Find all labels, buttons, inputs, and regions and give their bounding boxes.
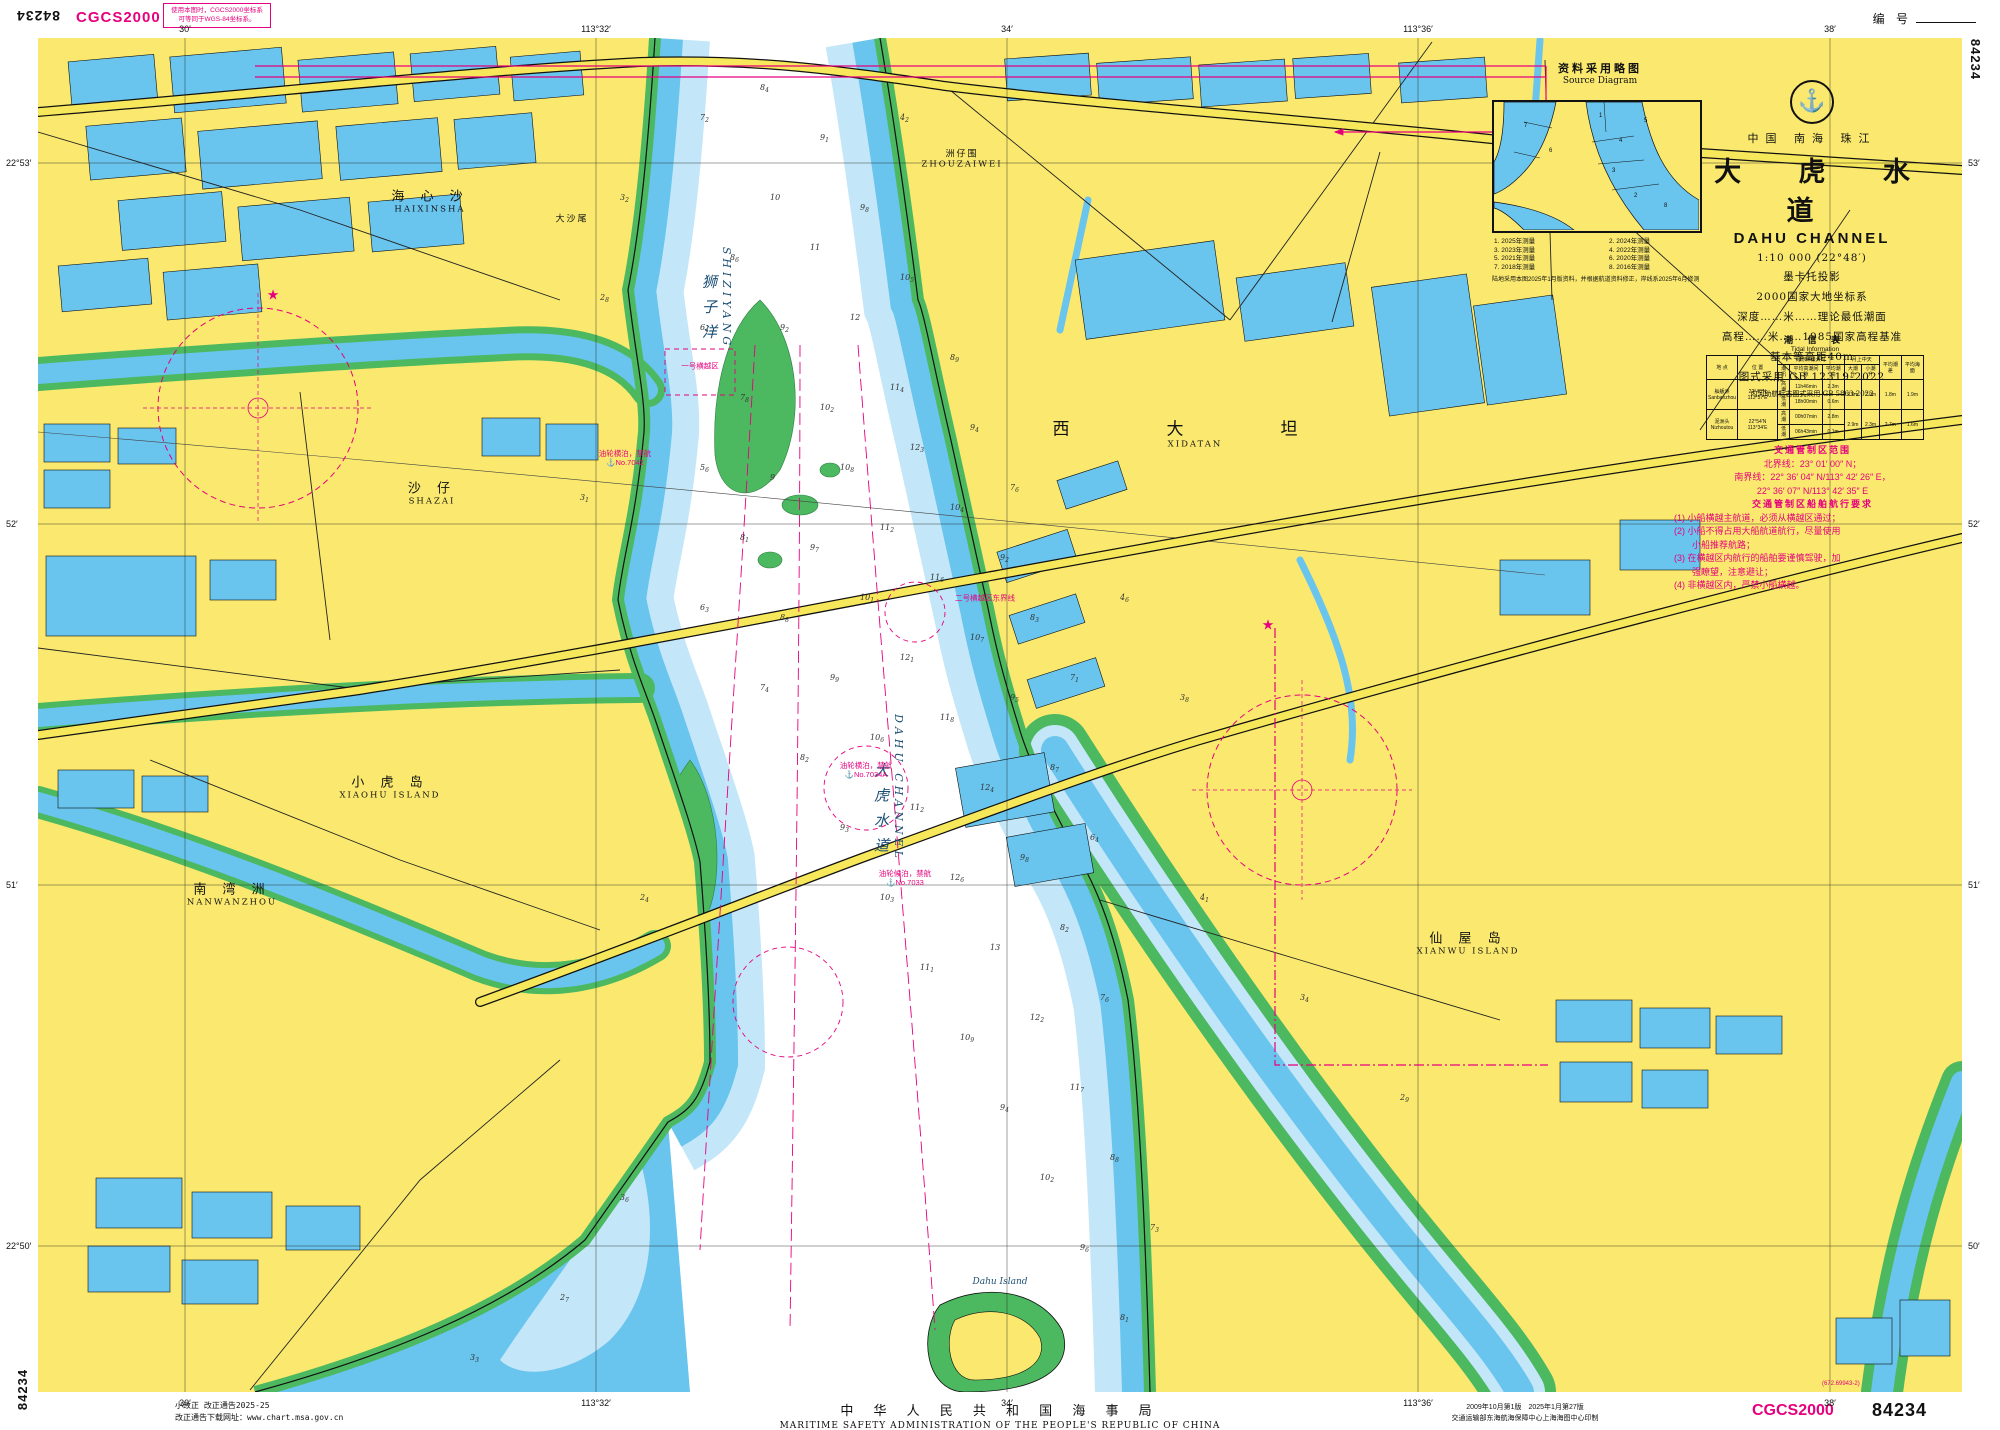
pond (510, 51, 584, 101)
pond (46, 556, 196, 636)
tide-col-neap: 小潮升 (1862, 365, 1880, 380)
tide-col-pos: 位 置 (1738, 356, 1778, 380)
print-code: (672.69943-2) (1822, 1381, 1860, 1387)
traffic-zone-boundary: 22° 36′ 07″ N/113° 42′ 35″ E (1660, 485, 1965, 499)
chart-title-cn: 大 虎 水 道 (1662, 150, 1962, 228)
pond (163, 264, 262, 320)
chart-datum: 2000国家大地坐标系 (1662, 289, 1962, 304)
longitude-tick-bottom: 34′ (1001, 1398, 1013, 1408)
tide-cell: 22°54′N 113°34′E (1738, 410, 1778, 440)
traffic-rule-line: (2) 小船不得占用大船航道航行，尽量使用 (1660, 525, 1965, 539)
sounding-value: 13 (990, 943, 1000, 952)
traffic-rule-line: 强瞭望，注意避让； (1660, 566, 1965, 580)
longitude-tick-bottom: 30′ (179, 1398, 191, 1408)
traffic-rule-line: (1) 小船横越主航道，必须从横越区通过； (1660, 512, 1965, 526)
traffic-rule-line: (3) 在横越区内航行的船舶要谨慎驾驶，加 (1660, 552, 1965, 566)
tide-cell: 低潮 (1777, 395, 1789, 410)
correction-line1: 小改正 改正通告2025-25 (175, 1400, 343, 1412)
tide-col-interval: 平均高潮间隙 (1790, 365, 1822, 380)
sounding-value: 10 (770, 193, 780, 202)
tide-cell: 高潮 (1777, 380, 1789, 395)
pond (482, 418, 540, 456)
latitude-tick-left: 52′ (6, 519, 18, 529)
tide-table-title: 潮 信 表 Tidal Information (1700, 333, 1930, 353)
tide-cell: 1.9m (1901, 380, 1923, 410)
pond (1473, 295, 1566, 405)
pond (96, 1178, 182, 1228)
source-diagram-title-en: Source Diagram (1530, 76, 1670, 86)
tide-cell: 00h07min (1790, 410, 1822, 425)
latitude-tick-right: 52′ (1968, 519, 1980, 529)
tide-cell: 2.3m (1862, 410, 1880, 440)
tide-cell: 舢舨洲Sanbanzhou (1707, 380, 1738, 410)
chart-number-right-edge: 84234 (1968, 39, 1983, 80)
traffic-rule-line: (4) 非横越区内，严禁小船横越。 (1660, 579, 1965, 593)
serial-label: 编 号 (1873, 12, 1912, 26)
longitude-tick-top: 38′ (1824, 24, 1836, 34)
traffic-control-note: 交通管制区范围北界线：23° 01′ 00″ N；南界线：22° 36′ 04″… (1660, 444, 1965, 593)
pond (182, 1260, 258, 1304)
correction-notes: 小改正 改正通告2025-25 改正通告下载网址：www.chart.msa.g… (175, 1400, 343, 1424)
edition-block: 2009年10月第1版 2025年1月第27版 交通运输部东海航海保障中心上海海… (1395, 1402, 1655, 1424)
tide-cell: 18h00min (1790, 395, 1822, 410)
latitude-tick-left: 22°50′ (6, 1241, 31, 1251)
tide-cell: 22°48′N 113°37′E (1738, 380, 1778, 410)
tide-cell: 低潮 (1777, 425, 1789, 440)
tide-cell: 泥洲头Nizhoutou (1707, 410, 1738, 440)
sounding-value: 11 (810, 243, 820, 252)
publisher-en: MARITIME SAFETY ADMINISTRATION OF THE PE… (600, 1421, 1400, 1430)
longitude-tick-bottom: 38′ (1824, 1398, 1836, 1408)
traffic-zone-boundary: 北界线：23° 01′ 00″ N； (1660, 458, 1965, 472)
pond (336, 118, 442, 181)
latitude-tick-left: 22°53′ (6, 158, 31, 168)
pond (210, 560, 276, 600)
chart-scale: 1:10 000 (22°48′) (1662, 252, 1962, 264)
pond (88, 1246, 170, 1292)
pond (58, 258, 152, 312)
nautical-chart-page: 84234 CGCS2000 使用本图时，CGCS2000坐标系 可等同于WGS… (0, 0, 2000, 1430)
tide-table: 地 点 位 置 月赤纬最大时 月上中天 平均潮差 平均海面 潮汛 平均高潮间隙 … (1706, 355, 1924, 440)
tide-table-title-cn: 潮 信 表 (1700, 333, 1930, 346)
pond (368, 194, 464, 252)
tide-table-row: 舢舨洲Sanbanzhou22°48′N 113°37′E高潮11h46min2… (1707, 380, 1924, 395)
latitude-tick-left: 51′ (6, 880, 18, 890)
msa-anchor-logo-icon: ⚓ (1790, 80, 1834, 124)
pond (454, 113, 536, 170)
pond (118, 428, 176, 464)
traffic-zone-header: 交通管制区范围 (1660, 444, 1965, 458)
pond (238, 197, 354, 261)
tide-cell: 2.8m (1822, 410, 1844, 425)
latitude-tick-right: 51′ (1968, 880, 1980, 890)
source-legend-item: 5. 2021年测量 (1494, 255, 1609, 264)
pond (1560, 1062, 1632, 1102)
pond (142, 776, 208, 812)
tide-col-tide: 潮汛 (1777, 365, 1789, 380)
tide-col-msl: 平均海面 (1901, 356, 1923, 380)
pond (1900, 1300, 1950, 1356)
tide-cell: 2.3m (1822, 380, 1844, 395)
pond (1642, 1070, 1708, 1108)
sounding-value: 12 (850, 313, 860, 322)
source-legend-item: 3. 2023年测量 (1494, 247, 1609, 256)
pond (58, 770, 134, 808)
chart-number-left-edge: 84234 (15, 1369, 30, 1410)
source-diagram-title: 资料采用略图 Source Diagram (1530, 60, 1670, 86)
tide-cell: 2.6m (1844, 380, 1862, 410)
pond (546, 424, 598, 460)
publisher-block: 中 华 人 民 共 和 国 海 事 局 MARITIME SAFETY ADMI… (600, 1400, 1400, 1430)
printer-line: 交通运输部东海航海保障中心上海海图中心印制 (1395, 1413, 1655, 1424)
pond (86, 118, 186, 180)
tide-col-group2: 月上中天 (1844, 356, 1879, 365)
tide-cell: 1.8m (1879, 380, 1901, 410)
datum-label-bottom-right: CGCS2000 (1752, 1402, 1834, 1420)
latitude-tick-right: 53′ (1968, 158, 1980, 168)
pond (286, 1206, 360, 1250)
tide-cell: 2.7m (1879, 410, 1901, 440)
pond (1836, 1318, 1892, 1364)
tide-col-group1: 月赤纬最大时 (1777, 356, 1844, 365)
pond (1716, 1016, 1782, 1054)
pond (1097, 57, 1194, 105)
edition-line: 2009年10月第1版 2025年1月第27版 (1395, 1402, 1655, 1413)
datum-note-line1: 使用本图时，CGCS2000坐标系 (166, 7, 268, 16)
publisher-cn: 中 华 人 民 共 和 国 海 事 局 (600, 1400, 1400, 1419)
tide-col-height: 平均潮高 (1822, 365, 1844, 380)
chart-number-top-left: 84234 (16, 8, 60, 24)
tide-cell: 06h43min (1790, 425, 1822, 440)
longitude-tick-top: 113°36′ (1403, 24, 1433, 34)
tide-cell: 0.1m (1822, 425, 1844, 440)
sounding-value: 9 (770, 473, 775, 482)
pond (1500, 560, 1590, 615)
chart-title-en: DAHU CHANNEL (1662, 230, 1962, 247)
tide-cell: 1.6m (1901, 410, 1923, 440)
pond (44, 424, 110, 462)
longitude-tick-top: 30′ (179, 24, 191, 34)
traffic-rules-header: 交通管制区船舶航行要求 (1660, 498, 1965, 512)
longitude-tick-bottom: 113°36′ (1403, 1398, 1433, 1408)
source-legend-item: 7. 2018年测量 (1494, 264, 1609, 273)
pond (198, 121, 323, 189)
tide-table-title-en: Tidal Information (1700, 346, 1930, 353)
pond (1293, 53, 1372, 98)
source-legend-item: 1. 2025年测量 (1494, 238, 1609, 247)
datum-label-top-left: CGCS2000 (76, 9, 161, 26)
serial-number-field: 编 号 (1873, 10, 1976, 27)
pond (1371, 274, 1484, 416)
tide-table-row: 泥洲头Nizhoutou22°54′N 113°34′E高潮00h07min2.… (1707, 410, 1924, 425)
chart-number-bottom-right: 84234 (1872, 1400, 1927, 1421)
pond (44, 470, 110, 508)
tide-cell: 11h46min (1790, 380, 1822, 395)
source-diagram-title-cn: 资料采用略图 (1530, 60, 1670, 76)
serial-blank-line (1916, 22, 1976, 23)
pond (118, 192, 226, 251)
tide-cell: 0.6m (1822, 395, 1844, 410)
pond (1556, 1000, 1632, 1042)
traffic-zone-boundary: 南界线：22° 36′ 04″ N/113° 42′ 26″ E， (1660, 471, 1965, 485)
longitude-tick-top: 34′ (1001, 24, 1013, 34)
tide-cell: 2.0m (1862, 380, 1880, 410)
latitude-tick-right: 50′ (1968, 1241, 1980, 1251)
pond (1640, 1008, 1710, 1048)
chart-projection: 墨卡托投影 (1662, 269, 1962, 284)
pond (192, 1192, 272, 1238)
tide-cell: 2.9m (1844, 410, 1862, 440)
traffic-rule-line: 小船推荐航路； (1660, 539, 1965, 553)
chart-depth-note: 深度……米……理论最低潮面 (1662, 309, 1962, 324)
longitude-tick-top: 113°32′ (581, 24, 611, 34)
title-region-line: 中国 南海 珠江 (1662, 130, 1962, 146)
correction-line2: 改正通告下载网址：www.chart.msa.gov.cn (175, 1412, 343, 1424)
pond (1399, 57, 1488, 103)
datum-note-line2: 可等同于WGS-84坐标系。 (166, 16, 268, 25)
tide-cell: 高潮 (1777, 410, 1789, 425)
tide-col-range: 平均潮差 (1879, 356, 1901, 380)
longitude-tick-bottom: 113°32′ (581, 1398, 611, 1408)
tide-col-spring: 大潮升 (1844, 365, 1862, 380)
tide-col-place: 地 点 (1707, 356, 1738, 380)
